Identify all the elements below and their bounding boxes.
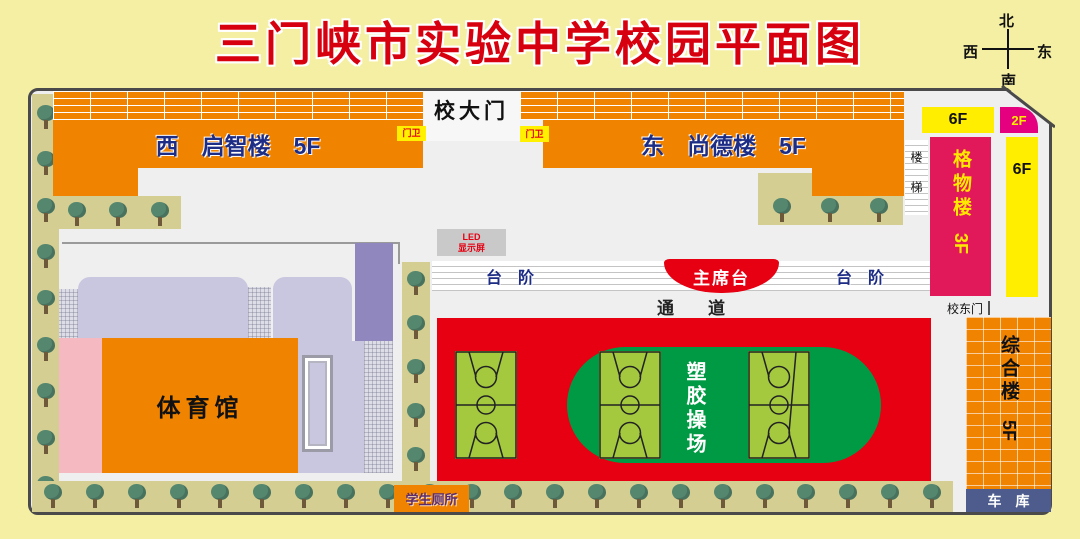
east-gate-label: 校东门 xyxy=(942,301,990,315)
basketball-court xyxy=(599,351,661,459)
gewu-building-floors: 3F xyxy=(950,233,971,254)
gym-annex-block xyxy=(78,277,248,341)
tree-icon xyxy=(150,202,170,227)
tree-strip-middle xyxy=(402,262,430,481)
gewu-building: 格物楼 3F xyxy=(930,137,991,296)
tree-icon xyxy=(67,202,87,227)
stairs-strip: 楼梯 xyxy=(905,140,928,215)
zonghe-building-name: 综合楼 xyxy=(995,335,1022,404)
tree-icon xyxy=(406,447,426,472)
tree-icon xyxy=(713,484,733,509)
basketball-court xyxy=(455,351,517,459)
tree-icon xyxy=(406,359,426,384)
tree-icon xyxy=(169,484,189,509)
gym-pink-wing xyxy=(55,338,102,473)
tree-icon xyxy=(922,484,942,509)
gewu-building-name: 格物楼 xyxy=(947,149,974,221)
map-corner-cut xyxy=(999,85,1055,129)
compass-east-label: 东 xyxy=(1037,41,1052,62)
basketball-court xyxy=(748,351,810,459)
tree-icon xyxy=(880,484,900,509)
tree-icon xyxy=(869,198,889,223)
west-roof-strip xyxy=(53,91,423,120)
compass-west-label: 西 xyxy=(963,41,978,62)
east-roof-strip xyxy=(520,91,904,120)
tree-icon xyxy=(629,484,649,509)
west-qizhi-building: 西 启智楼 5F xyxy=(53,120,423,168)
tree-icon xyxy=(545,484,565,509)
guard-booth-right: 门卫 xyxy=(520,126,549,142)
tree-icon xyxy=(772,198,792,223)
compass: 北 南 西 东 xyxy=(955,10,1055,90)
tree-patch-west xyxy=(56,196,181,229)
tree-icon xyxy=(406,271,426,296)
gym-yard-boundary-line xyxy=(398,242,400,264)
zonghe-building-floors: 5F xyxy=(998,420,1019,441)
tree-icon xyxy=(108,202,128,227)
led-screen: LED 显示屏 xyxy=(437,229,506,256)
gymnasium-building: 体育馆 xyxy=(102,338,298,473)
west-building-wing xyxy=(53,168,138,196)
tree-icon xyxy=(210,484,230,509)
tree-icon xyxy=(36,290,56,315)
guard-booth-left: 门卫 xyxy=(397,126,426,141)
six-f-side-building: 6F xyxy=(1006,137,1038,297)
tree-icon xyxy=(252,484,272,509)
tree-icon xyxy=(406,403,426,428)
gym-annex-block xyxy=(273,277,352,341)
tree-icon xyxy=(503,484,523,509)
steps-label-right: 台 阶 xyxy=(805,266,915,286)
gym-yard-boundary-line xyxy=(62,242,400,244)
tree-icon xyxy=(36,244,56,269)
tree-icon xyxy=(820,198,840,223)
tree-icon xyxy=(36,198,56,223)
garage: 车 库 xyxy=(966,489,1051,512)
tree-icon xyxy=(294,484,314,509)
tree-icon xyxy=(36,383,56,408)
tree-icon xyxy=(406,315,426,340)
east-building-wing xyxy=(812,168,904,196)
east-shangde-building: 东 尚德楼 5F xyxy=(543,120,904,168)
tree-icon xyxy=(85,484,105,509)
tree-icon xyxy=(838,484,858,509)
gym-entrance-outline xyxy=(302,355,333,452)
led-screen-line1: LED xyxy=(463,232,481,242)
gym-tower-block xyxy=(355,243,393,341)
hatch-texture xyxy=(248,287,271,341)
tree-icon xyxy=(587,484,607,509)
compass-north-label: 北 xyxy=(999,10,1014,31)
hatch-texture xyxy=(364,341,393,473)
main-gate-label: 校大门 xyxy=(425,95,518,125)
playground-label: 塑胶操场 xyxy=(681,360,709,458)
zonghe-building: 综合楼 5F xyxy=(966,317,1051,489)
tree-icon xyxy=(796,484,816,509)
passage-label: 通 道 xyxy=(601,296,781,316)
steps-label-left: 台 阶 xyxy=(455,266,565,286)
tree-icon xyxy=(755,484,775,509)
compass-horizontal-line xyxy=(982,48,1034,50)
tree-icon xyxy=(336,484,356,509)
page-title: 三门峡市实验中学校园平面图 xyxy=(0,8,1080,80)
tree-icon xyxy=(36,430,56,455)
tree-icon xyxy=(127,484,147,509)
hatch-texture xyxy=(57,289,78,341)
student-toilet: 学生厕所 xyxy=(394,485,469,512)
led-screen-line2: 显示屏 xyxy=(458,243,485,253)
tree-strip-bottom xyxy=(32,481,953,512)
six-f-top-building: 6F xyxy=(922,107,994,133)
tree-icon xyxy=(671,484,691,509)
tree-icon xyxy=(36,337,56,362)
tree-icon xyxy=(43,484,63,509)
